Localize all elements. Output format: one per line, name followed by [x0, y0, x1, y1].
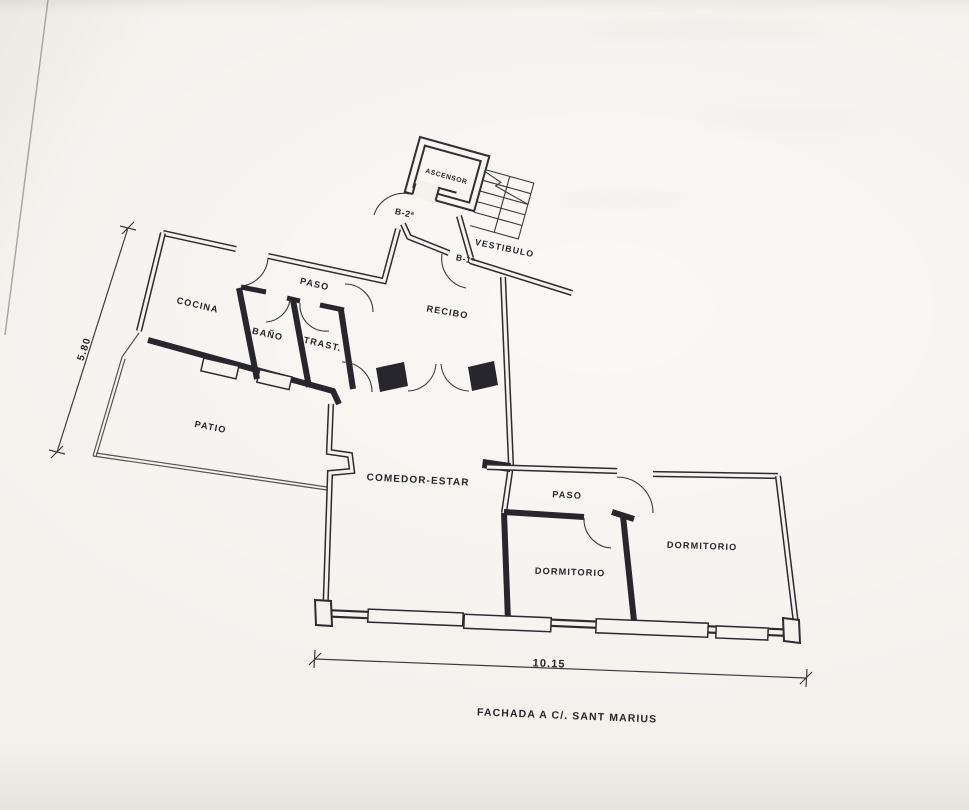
- floor-plan-drawing: ASCENSOR: [0, 0, 969, 810]
- window-bath: [257, 370, 292, 390]
- north-wall-a-core: [163, 233, 236, 249]
- room-label-kitchen: COCINA: [176, 295, 220, 314]
- facade-window-4: [716, 626, 768, 640]
- door-label-b1: B-1ª: [455, 252, 476, 266]
- facade-corner-left: [315, 600, 332, 626]
- elevator-stair-core: ASCENSOR: [401, 137, 538, 239]
- facade-caption: FACHADA A C/. SANT MARIUS: [477, 706, 658, 725]
- double-door-arc-right: [441, 364, 469, 391]
- elevator-label: ASCENSOR: [424, 168, 468, 186]
- dimension-bottom-value: 10.15: [532, 657, 565, 670]
- paper-smudge: [575, 18, 835, 42]
- north-wall-b-core: [268, 229, 398, 281]
- room-label-hall-right: PASO: [552, 489, 582, 501]
- room-label-living: COMEDOR-ESTAR: [366, 472, 469, 488]
- hall-south-wall-1: [241, 287, 266, 292]
- facade-window-2: [464, 614, 551, 631]
- double-door-arc-left: [408, 364, 436, 391]
- hall-north-wall-b-core: [653, 474, 778, 476]
- bedroom-left-north-wall: [504, 512, 584, 517]
- landing-wall-core: [403, 224, 449, 253]
- page-edge-line: [5, 0, 48, 335]
- bedroom-divider-wall: [623, 516, 634, 621]
- facade-window-1: [368, 609, 463, 626]
- hall-south-wall-2: [287, 298, 300, 301]
- room-label-bedroom-left: DORMITORIO: [535, 566, 606, 578]
- door-arc-bedroom-right: [617, 477, 653, 513]
- door-arc-bedroom-left: [584, 518, 611, 548]
- paper-smudge: [550, 192, 690, 208]
- bedroom-left-west-wall: [504, 513, 508, 621]
- door-arc-bath: [266, 300, 290, 322]
- room-label-entry-hall: RECIBO: [426, 303, 469, 320]
- wall-storage-entry: [341, 310, 353, 389]
- wing-south-wall: [148, 340, 339, 404]
- hall-south-wall-3: [320, 305, 344, 310]
- facade-corner-right: [783, 618, 800, 643]
- facade-window-3: [596, 619, 708, 637]
- door-post-left: [376, 362, 408, 392]
- dimension-left-value: 5.80: [76, 336, 94, 362]
- stairs-icon: [470, 170, 534, 239]
- room-label-patio: PATIO: [194, 419, 228, 435]
- door-arc-living: [342, 362, 372, 392]
- lobby-label: VESTIBULO: [474, 237, 535, 259]
- east-exterior-wall-core: [778, 476, 797, 632]
- door-arc-kitchen: [242, 258, 268, 286]
- room-label-bedroom-right: DORMITORIO: [667, 540, 738, 552]
- kitchen-west-wall-core: [139, 233, 163, 331]
- north-wall-b: [268, 229, 398, 281]
- door-arc-entry-hall: [345, 284, 373, 312]
- dimension-bottom: 10.15: [309, 650, 812, 687]
- door-post-right: [468, 361, 498, 391]
- vestibule-party-wall-core: [470, 261, 572, 293]
- room-label-hall-top: PASO: [299, 276, 330, 292]
- door-label-b2: B-2ª: [394, 206, 415, 220]
- room-label-storage: TRAST.: [303, 335, 343, 353]
- room-label-bath: BAÑO: [251, 326, 284, 343]
- stairwell-wall-core: [459, 216, 471, 258]
- scanned-page: ASCENSOR: [0, 0, 969, 810]
- dimension-left: 5.80: [49, 222, 136, 458]
- paper-smudge: [700, 111, 880, 129]
